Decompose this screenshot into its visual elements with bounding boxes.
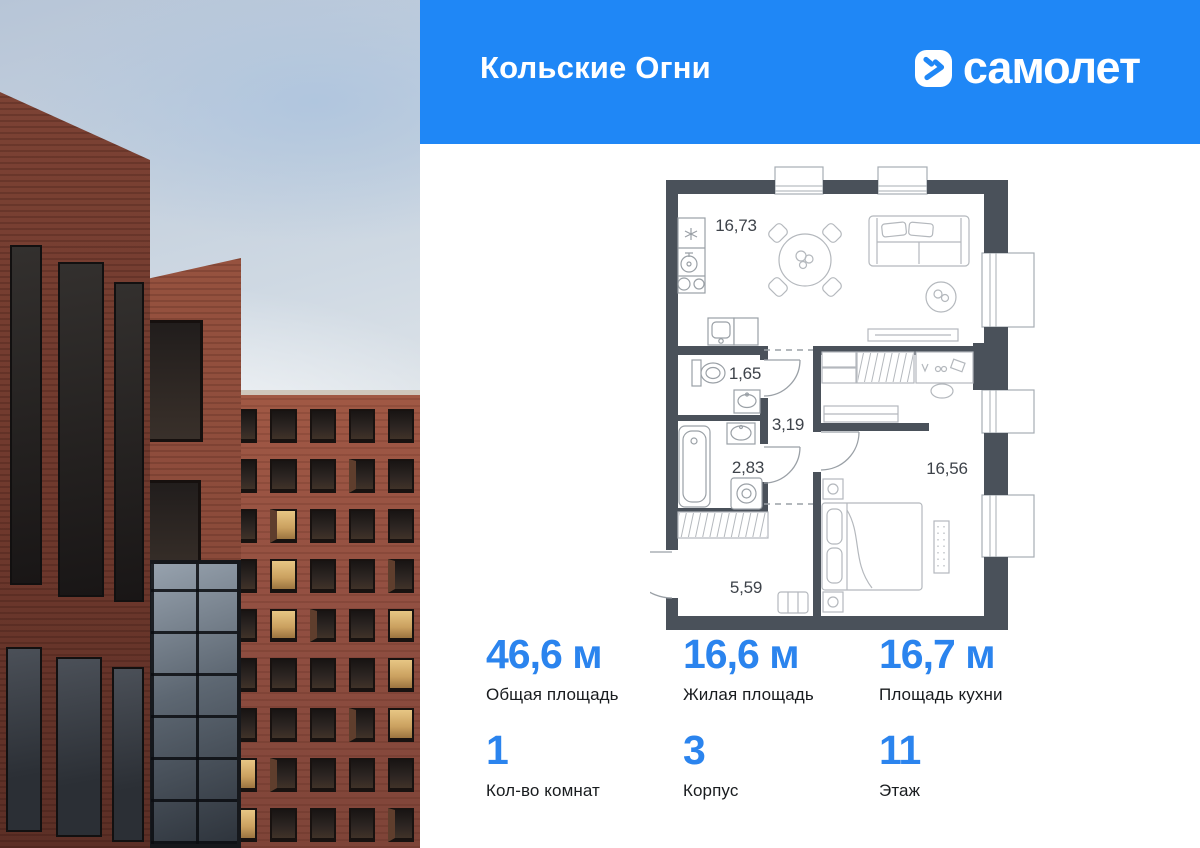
shoe-bench: [778, 592, 808, 613]
bedroom-dresser: [934, 521, 949, 573]
header-bar: Кольские Огни самолет: [420, 0, 1200, 144]
room-area-label-bathroom: 2,83: [732, 458, 764, 477]
hall-furniture: [678, 512, 808, 613]
stat-building-number: 3 Корпус: [683, 730, 738, 801]
stat-label: Этаж: [879, 781, 920, 801]
room-area-label-entry-hall: 5,59: [730, 578, 762, 597]
stat-label: Общая площадь: [486, 685, 619, 705]
stat-value: 16,7 м: [879, 634, 1003, 675]
brand-logo: самолет: [915, 42, 1140, 94]
samolet-logo-icon: [915, 50, 952, 87]
desk-chair: [931, 384, 953, 398]
nightstand: [823, 479, 843, 499]
room-area-label-kitchen-living: 16,73: [715, 216, 757, 235]
room-area-label-wc: 1,65: [729, 364, 761, 383]
stat-living-area: 16,6 м Жилая площадь: [683, 634, 814, 705]
brand-name: самолет: [963, 42, 1140, 94]
stat-value: 11: [879, 730, 920, 771]
stat-floor-number: 11 Этаж: [879, 730, 920, 801]
stat-total-area: 46,6 м Общая площадь: [486, 634, 619, 705]
apartment-card: Кольские Огни самолет: [0, 0, 1200, 848]
stat-kitchen-area: 16,7 м Площадь кухни: [879, 634, 1003, 705]
stat-rooms-count: 1 Кол-во комнат: [486, 730, 600, 801]
stat-label: Корпус: [683, 781, 738, 801]
room-area-label-hallway: 3,19: [772, 415, 804, 434]
stat-value: 16,6 м: [683, 634, 814, 675]
floor-plan: 16,73 1,65 3,19 2,83 16,56 5,59: [650, 158, 1050, 644]
living-furniture: [868, 216, 969, 341]
washing-machine-icon: [731, 478, 762, 509]
kitchen-fixtures: [678, 218, 758, 345]
project-title: Кольские Огни: [480, 50, 711, 86]
dining-table: [767, 222, 843, 298]
stat-label: Жилая площадь: [683, 685, 814, 705]
bedroom-furniture: [822, 352, 973, 612]
desk: [916, 352, 973, 383]
stat-value: 1: [486, 730, 600, 771]
stat-label: Площадь кухни: [879, 685, 1003, 705]
glazed-stairwell: [147, 560, 241, 848]
toilet-icon: [692, 360, 701, 386]
nightstand: [823, 592, 843, 612]
room-area-label-bedroom: 16,56: [926, 459, 968, 478]
floor-plan-drawing: 16,73 1,65 3,19 2,83 16,56 5,59: [650, 158, 1050, 644]
stat-label: Кол-во комнат: [486, 781, 600, 801]
building-photo: [0, 0, 420, 848]
stat-value: 3: [683, 730, 738, 771]
foreground-building: [0, 92, 150, 848]
stat-value: 46,6 м: [486, 634, 619, 675]
